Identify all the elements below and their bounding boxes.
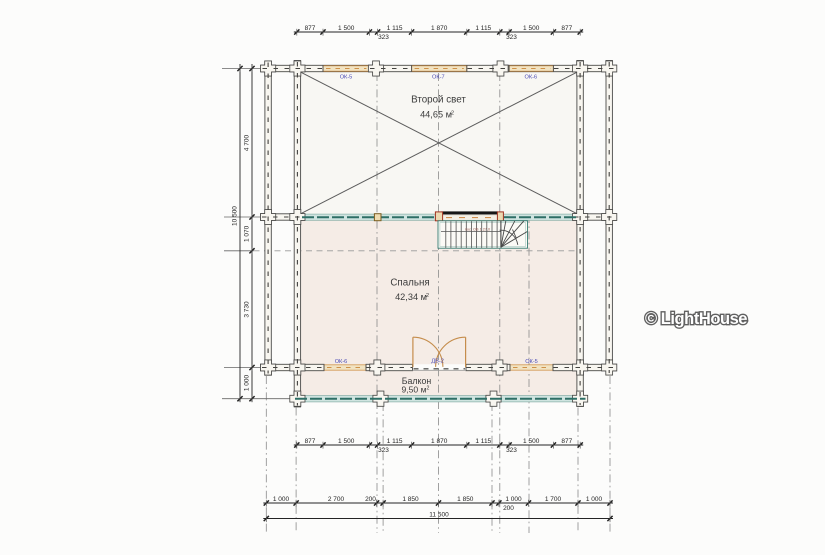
svg-text:323: 323: [378, 447, 389, 454]
svg-text:323: 323: [506, 447, 517, 454]
svg-text:1 115: 1 115: [387, 438, 403, 445]
svg-text:323: 323: [378, 34, 389, 41]
svg-text:1 115: 1 115: [475, 438, 491, 445]
svg-text:1 500: 1 500: [523, 25, 540, 32]
svg-text:1 115: 1 115: [475, 25, 491, 32]
svg-text:200: 200: [365, 496, 376, 503]
svg-text:877: 877: [305, 438, 316, 445]
svg-text:1 850: 1 850: [457, 496, 474, 503]
svg-text:1 000: 1 000: [505, 496, 522, 503]
svg-text:877: 877: [305, 25, 316, 32]
svg-text:© LightHouse: © LightHouse: [645, 310, 747, 328]
svg-text:ОК-6: ОК-6: [335, 359, 348, 365]
svg-text:1 850: 1 850: [402, 496, 419, 503]
svg-text:44,65 м: 44,65 м: [420, 110, 452, 120]
svg-text:1 500: 1 500: [338, 438, 355, 445]
svg-text:323: 323: [506, 34, 517, 41]
svg-text:1 000: 1 000: [244, 374, 251, 391]
svg-text:1 115: 1 115: [387, 25, 403, 32]
svg-text:2 700: 2 700: [328, 496, 345, 503]
svg-text:1 000: 1 000: [586, 496, 603, 503]
svg-text:1 870: 1 870: [431, 438, 448, 445]
svg-text:1 500: 1 500: [523, 438, 540, 445]
svg-text:42,34 м: 42,34 м: [395, 292, 427, 302]
svg-text:877: 877: [561, 438, 572, 445]
svg-text:Второй свет: Второй свет: [411, 94, 466, 105]
svg-text:2: 2: [427, 386, 430, 392]
svg-text:ДВ-2: ДВ-2: [431, 358, 444, 364]
svg-text:ОК-5: ОК-5: [525, 359, 538, 365]
svg-text:200: 200: [503, 505, 514, 512]
svg-text:пос. ОВ 1 27,0: пос. ОВ 1 27,0: [465, 227, 490, 231]
svg-text:9,50 м: 9,50 м: [401, 384, 426, 394]
svg-text:2: 2: [426, 293, 429, 299]
svg-text:4 700: 4 700: [244, 134, 251, 151]
svg-text:ОК-6: ОК-6: [525, 75, 538, 81]
svg-text:Спальня: Спальня: [390, 278, 429, 289]
svg-text:877: 877: [561, 25, 572, 32]
svg-text:1 070: 1 070: [244, 225, 251, 242]
svg-text:10 500: 10 500: [232, 206, 239, 226]
svg-text:1 500: 1 500: [338, 25, 355, 32]
svg-text:1 700: 1 700: [545, 496, 562, 503]
svg-text:3 730: 3 730: [244, 301, 251, 318]
svg-text:2: 2: [451, 111, 454, 117]
svg-text:ОК-7: ОК-7: [432, 75, 445, 81]
svg-text:11 500: 11 500: [429, 512, 449, 519]
svg-text:1 870: 1 870: [431, 25, 448, 32]
svg-text:1 000: 1 000: [273, 496, 290, 503]
svg-text:ОК-5: ОК-5: [340, 75, 353, 81]
